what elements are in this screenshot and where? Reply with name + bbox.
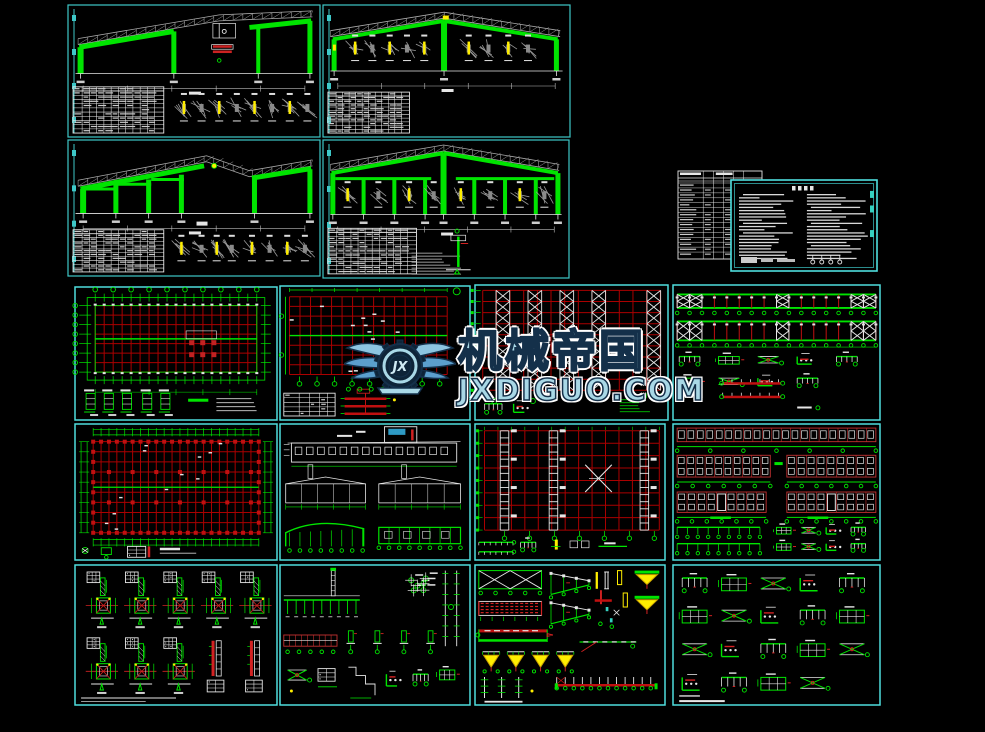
footing-details bbox=[75, 565, 277, 705]
connection-details-1 bbox=[280, 565, 470, 705]
column-layout-plan bbox=[75, 424, 277, 560]
foundation-plan bbox=[73, 287, 277, 420]
wall-bracing-elevations bbox=[673, 285, 880, 420]
general-notes bbox=[731, 180, 877, 271]
connection-details-2 bbox=[673, 565, 880, 705]
frame-elevation-2 bbox=[323, 5, 570, 137]
cad-canvas: JX 机械帝国 JXDIGUO.COM bbox=[0, 0, 985, 732]
gusset-details bbox=[475, 565, 665, 705]
frame-elevation-1 bbox=[68, 5, 320, 137]
purlin-layout-plan bbox=[475, 424, 665, 560]
frame-elevation-4 bbox=[323, 140, 569, 278]
frame-elevation-3 bbox=[68, 140, 320, 276]
building-elevations bbox=[280, 424, 470, 560]
roof-bracing-plan bbox=[471, 285, 668, 420]
wall-framing-elevations bbox=[673, 424, 880, 560]
drawing-sheet-layer bbox=[0, 0, 985, 732]
column-grid-plan bbox=[279, 286, 470, 420]
